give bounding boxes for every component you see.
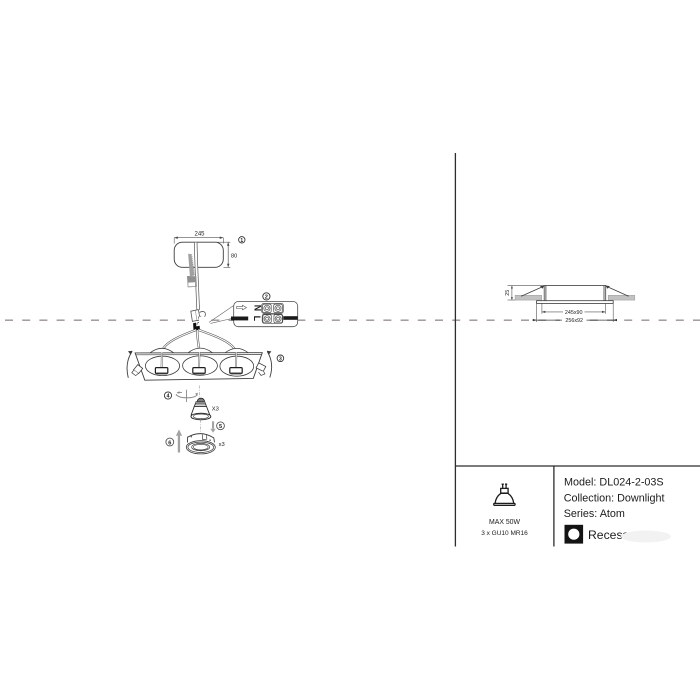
svg-text:Collection: Downlight: Collection: Downlight xyxy=(564,493,665,505)
svg-text:5: 5 xyxy=(219,424,222,430)
svg-text:6: 6 xyxy=(168,440,171,446)
svg-text:2: 2 xyxy=(265,295,268,301)
svg-text:x3: x3 xyxy=(219,442,225,448)
svg-text:256x92: 256x92 xyxy=(565,318,583,324)
svg-text:X3: X3 xyxy=(212,407,219,413)
svg-text:Model: DL024-2-03S: Model: DL024-2-03S xyxy=(564,477,664,489)
svg-text:3 x GU10 MR16: 3 x GU10 MR16 xyxy=(481,530,528,537)
svg-text:25: 25 xyxy=(505,290,511,296)
svg-text:80: 80 xyxy=(231,254,237,260)
svg-text:MAX 50W: MAX 50W xyxy=(489,519,521,526)
svg-text:1: 1 xyxy=(240,238,243,244)
svg-text:L: L xyxy=(252,316,262,322)
svg-text:4: 4 xyxy=(167,394,170,400)
svg-text:Series: Atom: Series: Atom xyxy=(564,508,625,520)
svg-text:3: 3 xyxy=(279,356,282,362)
svg-text:N: N xyxy=(253,305,263,311)
svg-text:245: 245 xyxy=(194,231,205,237)
svg-text:245x90: 245x90 xyxy=(565,310,583,316)
